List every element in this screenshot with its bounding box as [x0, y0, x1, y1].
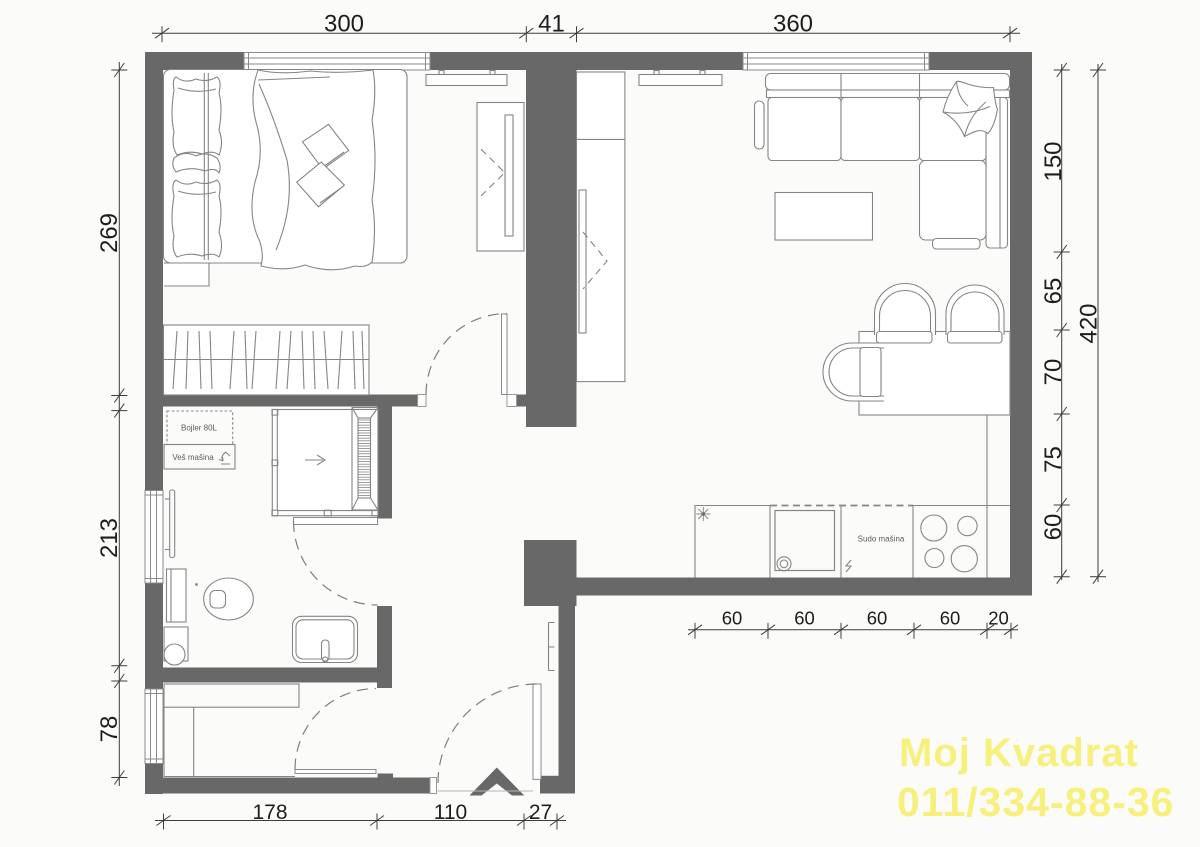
svg-text:Veš mašina: Veš mašina [172, 453, 214, 462]
svg-text:60: 60 [940, 608, 961, 629]
svg-text:213: 213 [96, 518, 123, 558]
svg-text:60: 60 [794, 608, 815, 629]
svg-text:41: 41 [538, 11, 565, 38]
svg-text:60: 60 [1040, 514, 1067, 541]
svg-text:110: 110 [434, 801, 467, 824]
svg-text:269: 269 [96, 213, 123, 253]
svg-text:420: 420 [1076, 303, 1103, 343]
svg-text:178: 178 [252, 801, 287, 824]
svg-text:20: 20 [988, 608, 1009, 629]
svg-text:Bojler 80L: Bojler 80L [181, 424, 218, 433]
svg-text:011/334-88-36: 011/334-88-36 [897, 779, 1174, 825]
svg-text:70: 70 [1040, 359, 1067, 386]
svg-text:300: 300 [324, 11, 364, 38]
svg-text:65: 65 [1040, 278, 1067, 305]
svg-text:60: 60 [867, 608, 888, 629]
svg-text:78: 78 [96, 716, 123, 743]
svg-text:60: 60 [722, 608, 743, 629]
svg-text:150: 150 [1040, 141, 1067, 181]
svg-text:360: 360 [773, 11, 813, 38]
svg-text:Sudo mašina: Sudo mašina [858, 535, 905, 544]
svg-text:27: 27 [529, 801, 552, 824]
svg-text:Moj Kvadrat: Moj Kvadrat [899, 731, 1139, 775]
svg-text:75: 75 [1040, 446, 1067, 473]
